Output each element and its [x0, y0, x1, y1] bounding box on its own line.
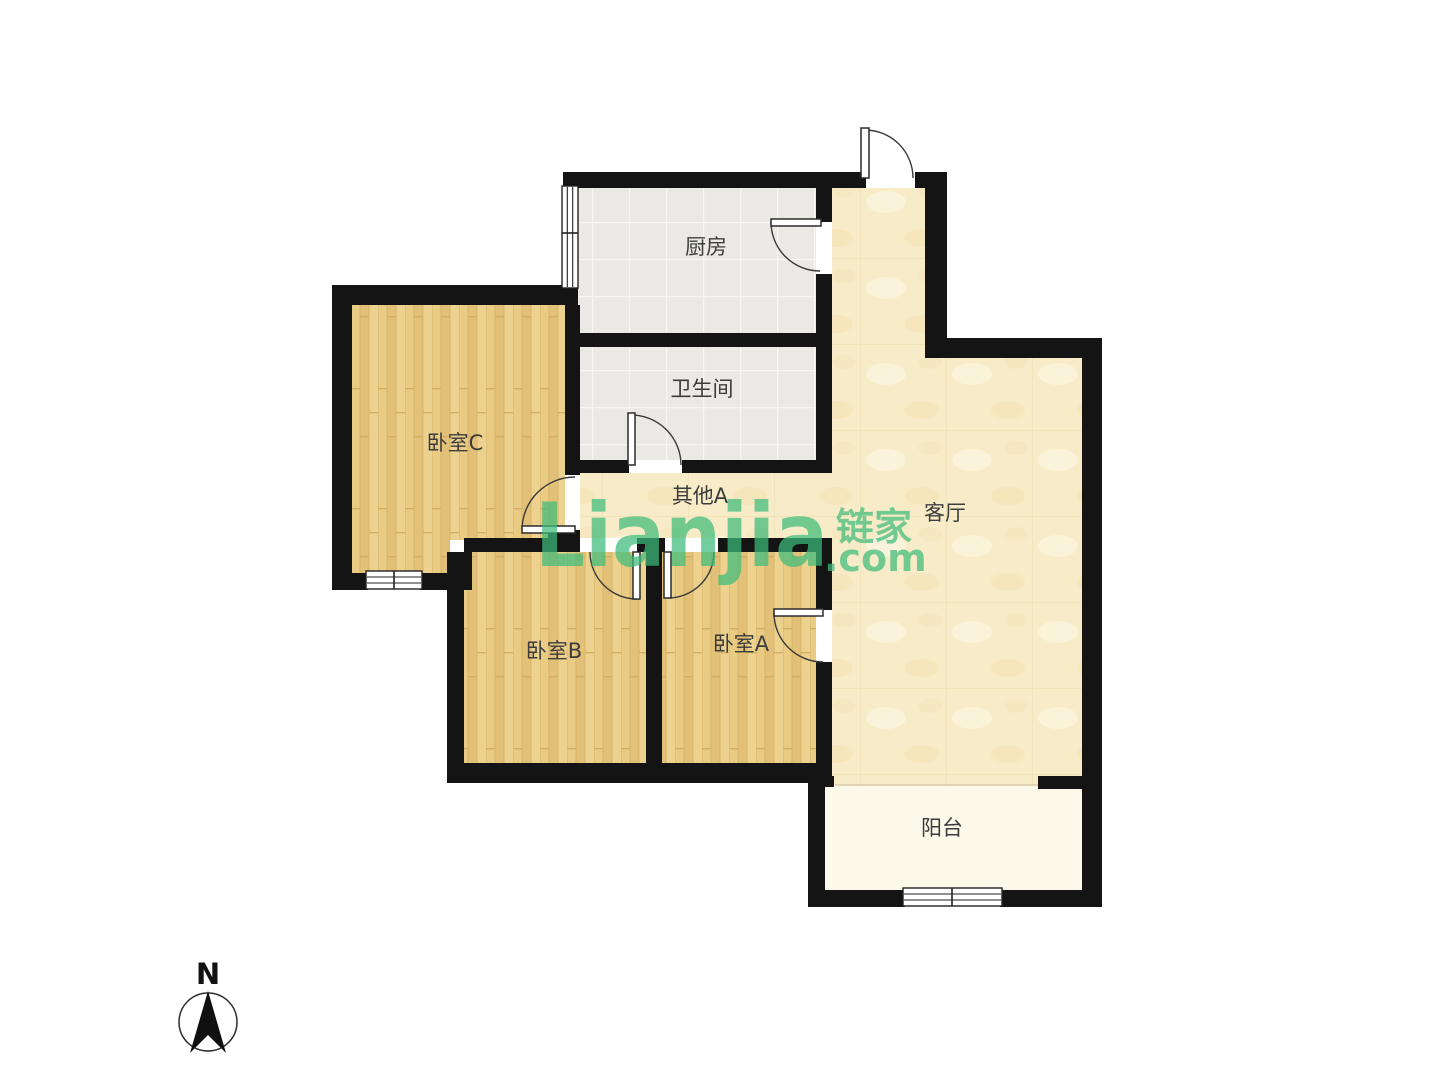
- bathroom-label: 卫生间: [671, 377, 734, 401]
- floorplan-canvas: 厨房 卫生间 其他A 客厅 卧室C 卧室B 卧室A 阳台 Lianjia 链家 …: [0, 0, 1440, 1080]
- kitchen-floor: [578, 188, 816, 333]
- kitchen-window: [562, 186, 578, 288]
- balcony-window: [903, 888, 1002, 906]
- bedroom-b-label: 卧室B: [526, 639, 582, 663]
- bedroom-a-label: 卧室A: [713, 632, 770, 656]
- bedroom-c-label: 卧室C: [427, 431, 484, 455]
- north-label: N: [196, 957, 220, 991]
- north-compass: N: [179, 957, 237, 1053]
- watermark-tld-text: .com: [824, 536, 927, 580]
- bedroom-c-window: [366, 571, 422, 589]
- north-arrow-icon: [190, 991, 226, 1053]
- floorplan-svg: 厨房 卫生间 其他A 客厅 卧室C 卧室B 卧室A 阳台 Lianjia 链家 …: [0, 0, 1440, 1080]
- entry-door: [861, 128, 913, 178]
- watermark-brand-text: Lianjia: [535, 484, 828, 587]
- living-room-floor: [832, 188, 1082, 785]
- balcony-label: 阳台: [921, 816, 963, 840]
- kitchen-label: 厨房: [685, 235, 727, 259]
- living-room-label: 客厅: [924, 501, 966, 525]
- bathroom-floor: [580, 347, 816, 460]
